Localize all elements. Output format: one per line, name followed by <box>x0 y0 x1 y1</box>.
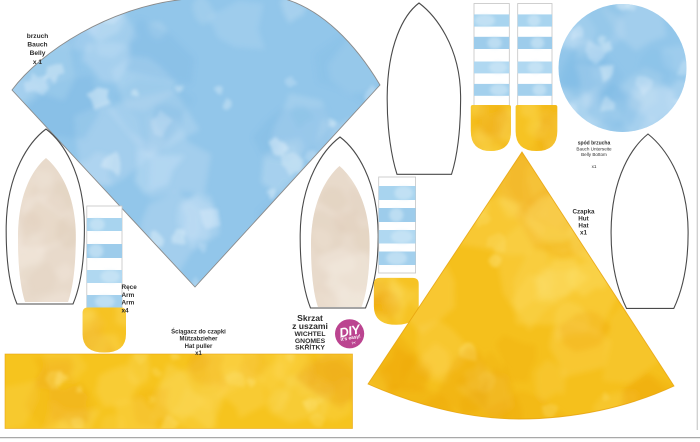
svg-text:Mützabzieher: Mützabzieher <box>179 337 218 343</box>
svg-text:Bauch Unterseite: Bauch Unterseite <box>576 147 612 152</box>
svg-text:Belly: Belly <box>30 50 46 57</box>
svg-text:z uszami: z uszami <box>292 321 328 331</box>
svg-text:x4: x4 <box>122 307 130 314</box>
svg-text:Ręce: Ręce <box>122 284 138 291</box>
svg-text:Hut: Hut <box>578 216 589 223</box>
svg-text:Ściągacz do czapki: Ściągacz do czapki <box>171 329 226 336</box>
svg-text:x1: x1 <box>195 351 202 357</box>
svg-text:x1: x1 <box>580 230 588 237</box>
svg-text:Arm: Arm <box>122 292 135 299</box>
svg-text:brzuch: brzuch <box>27 33 49 40</box>
svg-text:Bauch: Bauch <box>27 42 47 49</box>
svg-text:Hat: Hat <box>578 223 589 230</box>
svg-text:SKŘÍTKY: SKŘÍTKY <box>295 343 325 352</box>
svg-text:Belly Bottom: Belly Bottom <box>581 152 607 157</box>
svg-text:Czapka: Czapka <box>572 209 595 216</box>
svg-text:x1: x1 <box>592 164 597 169</box>
svg-text:Arm: Arm <box>122 300 135 307</box>
svg-text:Hat puller: Hat puller <box>185 344 213 350</box>
svg-text:x 1: x 1 <box>33 59 42 66</box>
